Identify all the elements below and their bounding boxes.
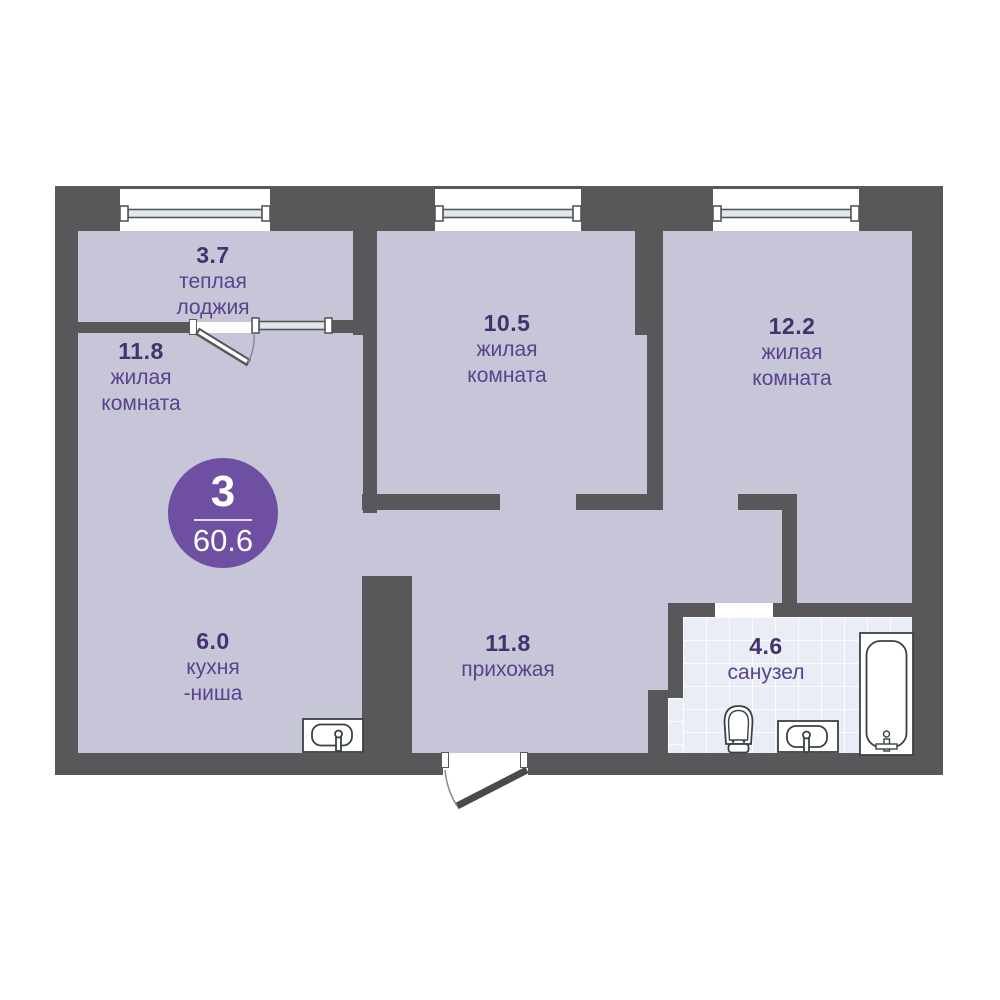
- wall-kitchen-hall-pillar: [362, 576, 412, 753]
- door-jamb: [520, 752, 528, 768]
- entrance-door-opening: [443, 753, 528, 775]
- total-area: 60.6: [193, 525, 253, 556]
- balcony-door-opening: [196, 322, 255, 333]
- room-label-living1: 11.8 жилая комната: [41, 338, 241, 416]
- room-name: комната: [692, 366, 892, 392]
- room-area: 11.8: [41, 338, 241, 365]
- room-area: 11.8: [408, 630, 608, 657]
- room-name: жилая: [692, 340, 892, 366]
- rooms-count: 3: [211, 470, 235, 514]
- wall-outer-left: [55, 186, 78, 775]
- room-name: лоджия: [113, 295, 313, 321]
- room-label-living2: 10.5 жилая комната: [407, 310, 607, 388]
- room-area: 10.5: [407, 310, 607, 337]
- bathroom-floor-alcove: [668, 698, 683, 753]
- room-name: -ниша: [113, 681, 313, 707]
- window-opening-1: [120, 189, 270, 231]
- room-label-living3: 12.2 жилая комната: [692, 313, 892, 391]
- room-area: 12.2: [692, 313, 892, 340]
- room-name: кухня: [113, 655, 313, 681]
- room-name: комната: [41, 391, 241, 417]
- wall-loggia-bottom: [78, 322, 190, 333]
- badge-divider: [194, 519, 252, 521]
- room-label-loggia: 3.7 теплая лоджия: [113, 242, 313, 320]
- wall-loggia-window-stub: [331, 320, 353, 333]
- wall-loggia-room2-column: [353, 231, 377, 335]
- wall-hall-top-left: [362, 494, 500, 510]
- room-area: 6.0: [113, 628, 313, 655]
- room-name: комната: [407, 363, 607, 389]
- room-label-kitchen: 6.0 кухня -ниша: [113, 628, 313, 706]
- door-jamb: [189, 319, 197, 335]
- door-jamb: [441, 752, 449, 768]
- wall-room2-room3-thick: [635, 231, 663, 335]
- wall-room2-left: [363, 335, 377, 513]
- room-area: 3.7: [113, 242, 313, 269]
- window-opening-3: [713, 189, 859, 231]
- room-name: санузел: [666, 660, 866, 686]
- room-name: прихожая: [408, 657, 608, 683]
- wall-outer-right: [912, 186, 943, 775]
- wall-room3-bath-vertical: [782, 494, 797, 603]
- plan-badge: 3 60.6: [168, 458, 278, 568]
- wall-room2-room3-thin: [647, 335, 663, 494]
- room-name: теплая: [113, 269, 313, 295]
- bathroom-door-opening: [715, 603, 773, 617]
- wall-bath-left-lower: [648, 690, 683, 698]
- floor-plan: 3.7 теплая лоджия 11.8 жилая комната 10.…: [0, 0, 1000, 1000]
- window-opening-2: [435, 189, 581, 231]
- room-label-hallway: 11.8 прихожая: [408, 630, 608, 683]
- wall-bath-left-lower2: [648, 698, 668, 753]
- room-label-bathroom: 4.6 санузел: [666, 633, 866, 686]
- door-swing-icon: [445, 770, 527, 806]
- room-name: жилая: [41, 365, 241, 391]
- room-area: 4.6: [666, 633, 866, 660]
- wall-hall-top-right: [576, 494, 663, 510]
- wall-bath-top-right: [773, 603, 912, 617]
- room-name: жилая: [407, 337, 607, 363]
